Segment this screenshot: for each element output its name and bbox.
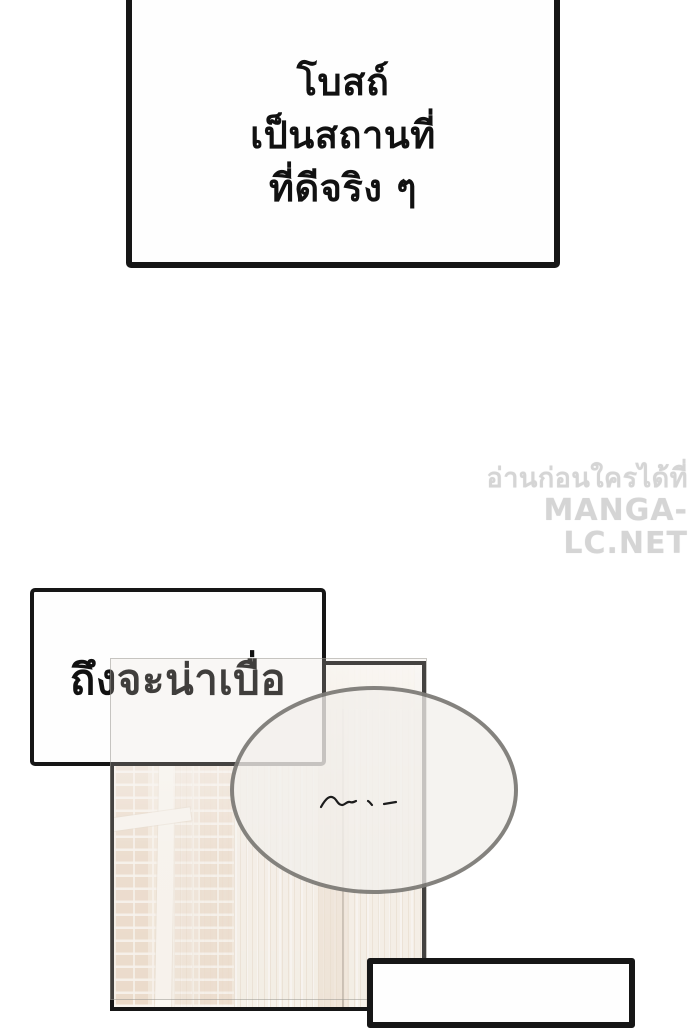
thought-bubble-ellipse bbox=[230, 686, 518, 894]
bubble-top-line1: โบสถ์ bbox=[250, 56, 436, 109]
bubble-top-line3: ที่ดีจริง ๆ bbox=[250, 162, 436, 215]
bubble-top-line2: เป็นสถานที่ bbox=[250, 109, 436, 162]
squiggle-mark-icon bbox=[318, 790, 408, 814]
bubble-top-text: โบสถ์ เป็นสถานที่ ที่ดีจริง ๆ bbox=[250, 56, 436, 215]
speech-bubble-bottom bbox=[367, 958, 635, 1028]
speech-bubble-top: โบสถ์ เป็นสถานที่ ที่ดีจริง ๆ bbox=[126, 0, 560, 268]
watermark: อ่านก่อนใครได้ที่ MANGA-LC.NET bbox=[452, 464, 688, 560]
watermark-thai-line: อ่านก่อนใครได้ที่ bbox=[452, 464, 688, 494]
watermark-site-line: MANGA-LC.NET bbox=[452, 494, 688, 560]
